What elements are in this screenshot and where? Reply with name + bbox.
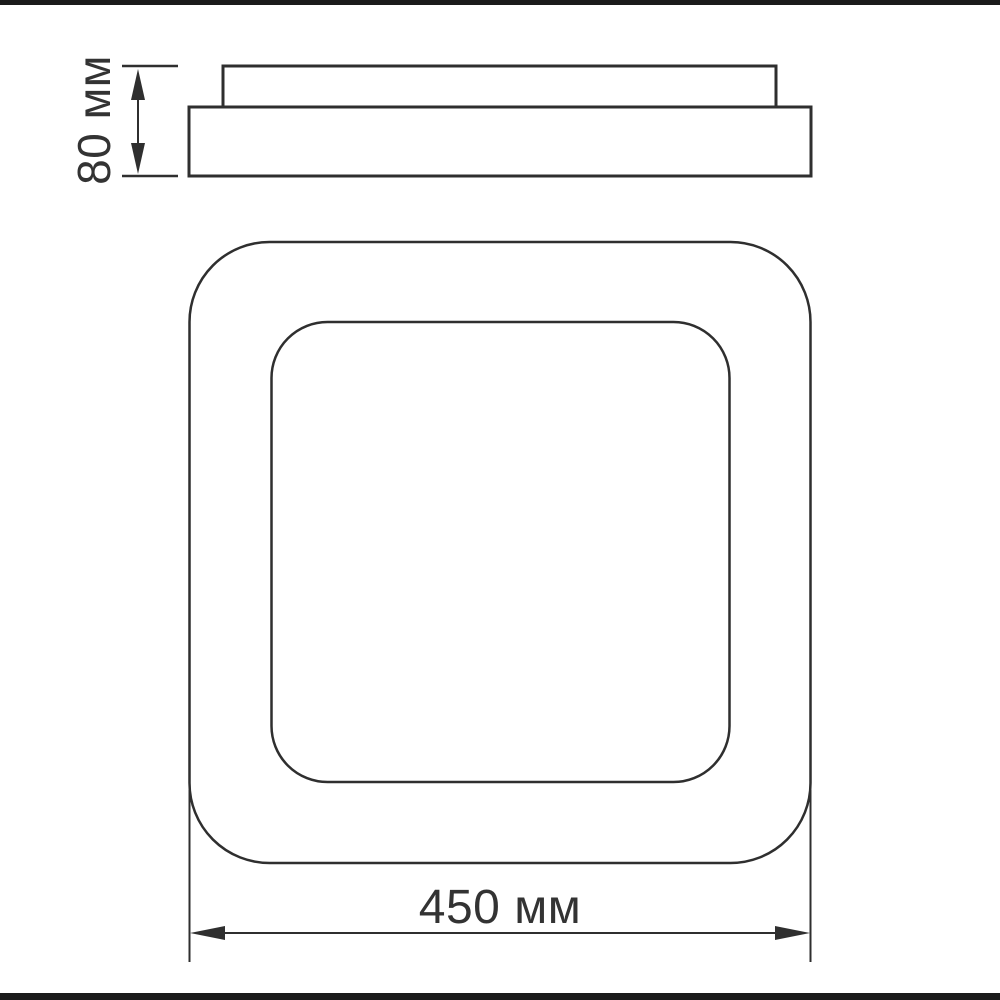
front-view (190, 242, 811, 863)
side-profile-view (189, 66, 811, 176)
height-arrowhead-down-icon (131, 143, 145, 174)
side-view-diffuser-rect (223, 66, 776, 107)
technical-drawing-svg (0, 0, 1000, 1000)
width-dimension-label: 450 мм (419, 884, 581, 932)
height-dimension (122, 66, 178, 176)
drawing-canvas: 80 мм 450 мм (0, 0, 1000, 1000)
height-dimension-label: 80 мм (71, 55, 117, 185)
height-arrowhead-up-icon (131, 69, 145, 100)
width-arrowhead-left-icon (190, 926, 225, 940)
front-view-inner-square (272, 322, 730, 782)
width-arrowhead-right-icon (775, 926, 810, 940)
side-view-base-rect (189, 107, 811, 176)
